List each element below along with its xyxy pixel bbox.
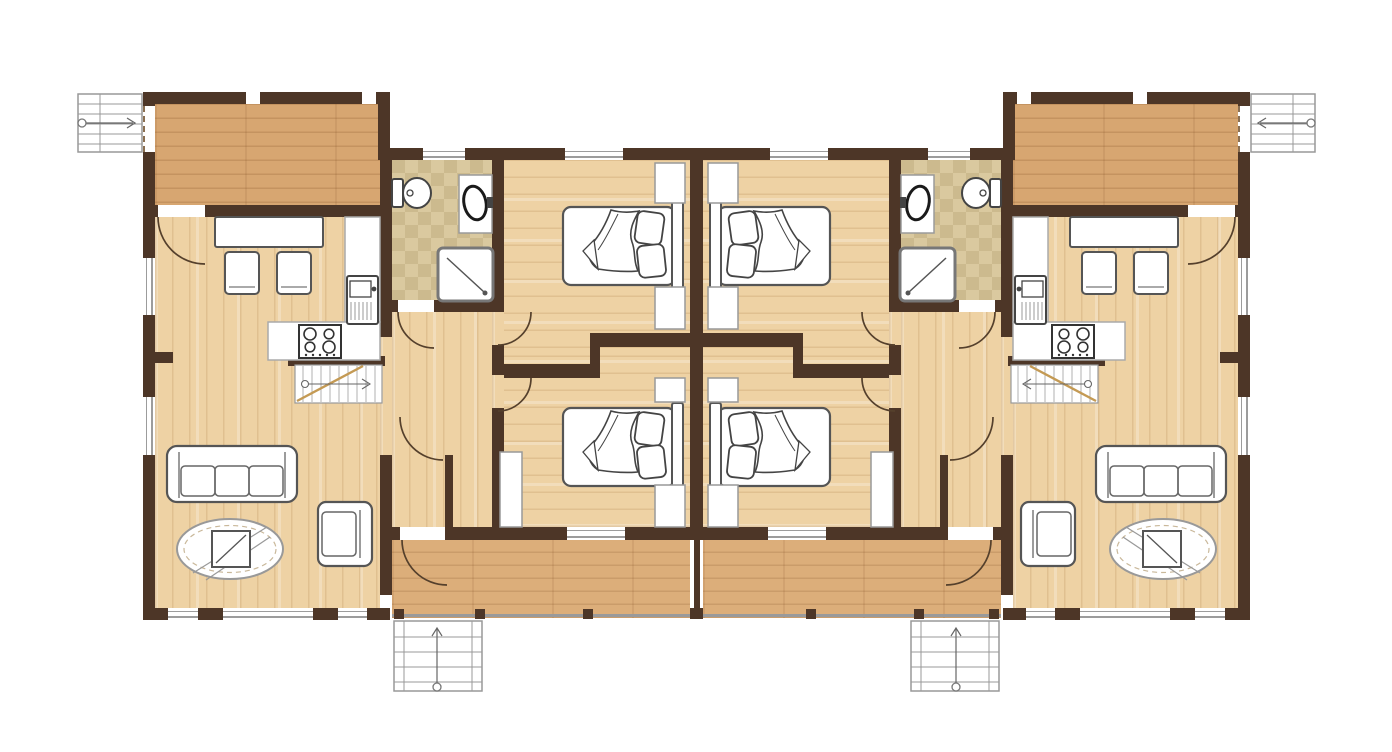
wall-bedrooms-north (380, 148, 1013, 160)
wall-bedroom-divider-a-left (597, 333, 690, 347)
wall-bedroom-divider-b-right (796, 364, 889, 378)
wall-hall-mid-right (889, 345, 901, 375)
wall-hall-mid-left (492, 345, 504, 375)
floor-dining-left (155, 217, 380, 420)
floor-upper-terrace-right (1013, 104, 1238, 217)
wall-stub-right (1220, 352, 1238, 363)
wall-kitchen-back-left (380, 160, 392, 337)
floor-bathroom-left (392, 160, 492, 300)
window (423, 148, 465, 160)
floor-upper-terrace-left (155, 104, 380, 217)
window (168, 608, 198, 620)
window (770, 148, 828, 160)
window (1080, 608, 1170, 620)
railing-post (583, 609, 593, 619)
stair-head-wall-right (1008, 356, 1105, 366)
wall-kitchen-back-right (1001, 160, 1013, 337)
floor-lower-terrace-right (703, 540, 1001, 618)
floor-hall-right (901, 312, 1001, 527)
wall-living-east-left (380, 455, 392, 533)
wall-terrace-top-left (143, 92, 390, 104)
floor-living-left (155, 420, 380, 608)
window (1195, 608, 1225, 620)
terrace-rail-gap (1017, 92, 1031, 104)
wall-exterior-east (1238, 92, 1250, 620)
terrace-stair-opening-right (1238, 106, 1250, 152)
wall-hall-low-right (889, 408, 901, 533)
window (1026, 608, 1055, 620)
wall-hall-low-left (492, 408, 504, 533)
window (1238, 258, 1250, 315)
floor-bathroom-right (901, 160, 1001, 300)
wall-terrace-east-right (1003, 104, 1015, 160)
floor-lower-terrace-left (392, 540, 690, 618)
window (768, 527, 826, 540)
door-opening-terrace2-left (400, 527, 445, 540)
terrace-stair-opening-left (143, 106, 155, 152)
door-opening-terrace-dining-left (158, 205, 205, 217)
door-opening-bathroom-right (959, 300, 995, 312)
wall-bathroom-east-left (492, 160, 504, 312)
terrace-divider-center (694, 540, 700, 618)
window (565, 148, 623, 160)
wall-terrace2-side-left (380, 533, 392, 595)
window (223, 608, 313, 620)
wall-closet-left (445, 455, 453, 527)
stair-head-wall-left (288, 356, 385, 366)
wall-exterior-west (143, 92, 155, 620)
railing-post-center (690, 608, 703, 619)
door-opening-terrace2-right (948, 527, 993, 540)
window (338, 608, 367, 620)
railing-post (475, 609, 485, 619)
railing-post (989, 609, 999, 619)
floor-living-right (1013, 420, 1238, 608)
wall-bathroom-west-right (889, 160, 901, 312)
window (1238, 397, 1250, 455)
window (143, 258, 155, 315)
terrace-rail-gap (1133, 92, 1147, 104)
door-opening-terrace-dining-right (1188, 205, 1235, 217)
floor-dining-right (1013, 217, 1238, 420)
wall-bedroom-divider-a-right (703, 333, 796, 347)
terrace-rail-gap (362, 92, 376, 104)
floor-plan (0, 0, 1392, 752)
wall-terrace2-side-right (1001, 533, 1013, 595)
window (928, 148, 970, 160)
terrace-rail-gap (246, 92, 260, 104)
door-opening-bathroom-left (398, 300, 434, 312)
floor-hall-left (392, 312, 492, 527)
wall-stub-left (155, 352, 173, 363)
wall-living-west-right (1001, 455, 1013, 533)
railing-post (914, 609, 924, 619)
railing-post (394, 609, 404, 619)
window (143, 397, 155, 455)
window (567, 527, 625, 540)
wall-terrace-top-right (1003, 92, 1250, 104)
wall-party-center (690, 160, 703, 540)
railing-post (806, 609, 816, 619)
wall-bedroom-divider-b-left (504, 364, 597, 378)
wall-closet-right (940, 455, 948, 527)
